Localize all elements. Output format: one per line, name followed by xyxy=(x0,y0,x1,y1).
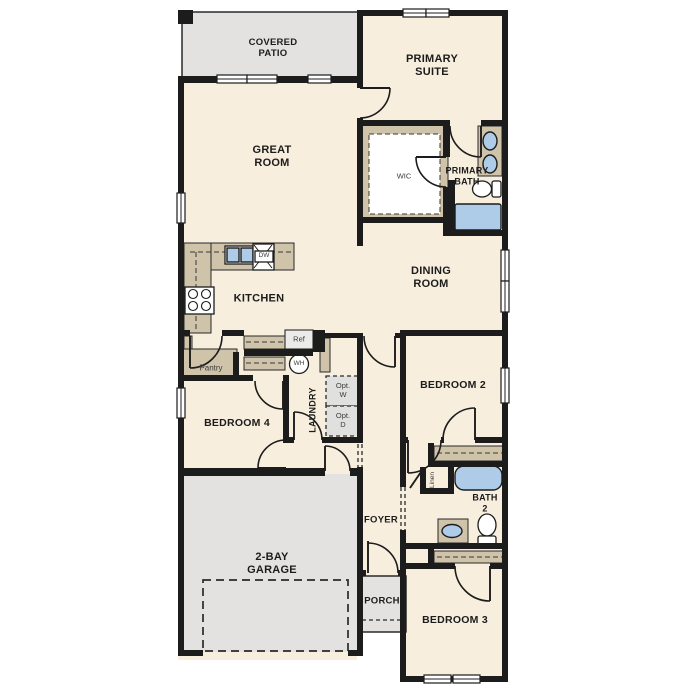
window-bedroom2 xyxy=(501,368,509,403)
label-primary-bath: PRIMARY BATH xyxy=(446,165,489,186)
floor-plan-drawing xyxy=(0,0,687,687)
label-wh: WH xyxy=(294,360,305,368)
label-foyer: FOYER xyxy=(364,514,398,525)
label-kitchen: KITCHEN xyxy=(234,293,285,306)
label-covered-patio: COVERED PATIO xyxy=(249,37,298,59)
floor-plan: COVERED PATIO PRIMARY SUITE GREAT ROOM W… xyxy=(0,0,687,687)
label-laundry: LAUNDRY xyxy=(308,387,319,432)
window-primary-suite xyxy=(403,9,449,17)
exterior-gap xyxy=(357,632,400,682)
range-icon xyxy=(185,287,214,314)
label-opt-dryer: Opt. D xyxy=(336,412,350,430)
window-great-room-left xyxy=(177,193,185,223)
label-dw: DW xyxy=(259,252,270,260)
label-dining-room: DINING ROOM xyxy=(411,265,451,291)
label-bedroom-2: BEDROOM 2 xyxy=(420,379,486,391)
label-bath-2: BATH 2 xyxy=(472,492,497,513)
label-linen: Linen xyxy=(429,472,437,488)
window-bedroom4-left xyxy=(177,388,185,418)
label-garage: 2-BAY GARAGE xyxy=(247,551,297,577)
bath2-tub-icon xyxy=(455,466,502,490)
kitchen-sink-icon xyxy=(225,246,255,264)
patio-post xyxy=(178,10,193,24)
bath2-sink-icon xyxy=(442,525,462,538)
windows-great-room-patio xyxy=(217,75,331,83)
label-porch: PORCH xyxy=(364,595,400,606)
label-opt-washer: Opt. W xyxy=(336,382,350,400)
label-primary-suite: PRIMARY SUITE xyxy=(406,53,458,79)
bath2-toilet-icon xyxy=(478,514,496,545)
label-wic: WIC xyxy=(397,173,412,182)
label-bedroom-3: BEDROOM 3 xyxy=(422,614,488,626)
window-dining xyxy=(501,250,509,312)
label-bedroom-4: BEDROOM 4 xyxy=(204,417,270,429)
label-great-room: GREAT ROOM xyxy=(253,144,292,170)
label-ref: Ref xyxy=(293,336,305,345)
primary-tub-icon xyxy=(455,204,501,230)
label-pantry: Pantry xyxy=(199,363,222,372)
